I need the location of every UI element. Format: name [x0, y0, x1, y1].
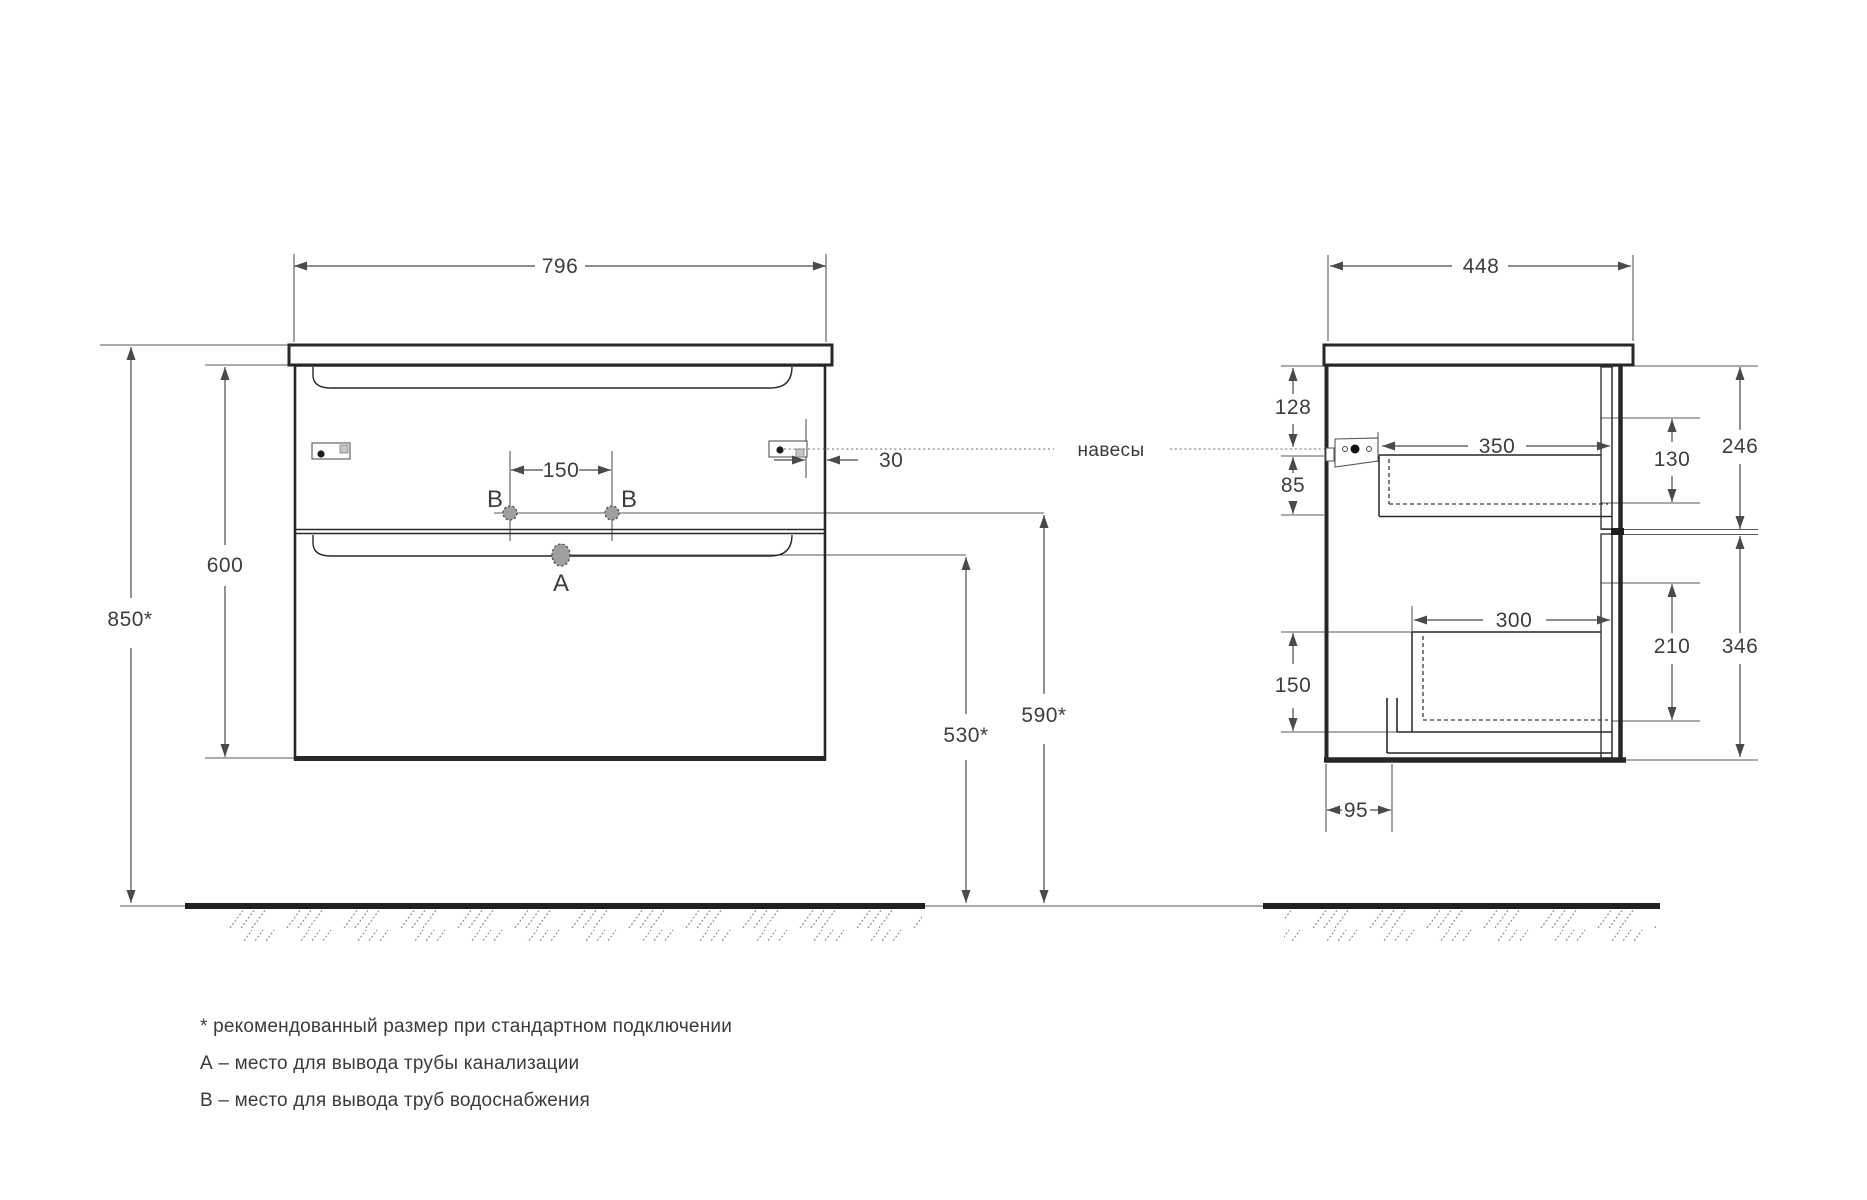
dim-drain-height: 530* — [943, 724, 988, 747]
left-mounting-bracket-icon — [312, 443, 350, 459]
dim-upper-drawer-side-height: 130 — [1654, 448, 1691, 471]
label-point-b-right: B — [621, 486, 637, 513]
label-point-a: A — [553, 570, 569, 597]
lower-drawer-box — [1412, 632, 1608, 732]
front-extension-lines — [100, 254, 1044, 758]
dim-mounting-height: 850* — [107, 608, 152, 631]
legend-a-note: А – место для вывода трубы канализации — [200, 1053, 579, 1074]
side-hanger-bracket-icon — [1326, 438, 1378, 467]
vanity-installation-drawing: 796 850* 600 150 30 590* 530* B B A наве… — [0, 0, 1867, 1200]
dim-lower-drawer-front-height: 346 — [1722, 635, 1759, 658]
legend-asterisk-note: * рекомендованный размер при стандартном… — [200, 1016, 732, 1037]
side-view: 448 128 85 350 130 246 300 210 346 150 9… — [1275, 255, 1759, 832]
water-supply-point-b-right — [605, 506, 619, 520]
hangers-callout: навесы — [784, 440, 1349, 461]
label-point-b-left: B — [487, 486, 503, 513]
dim-supply-height: 590* — [1021, 704, 1066, 727]
dim-front-width: 796 — [542, 255, 579, 278]
side-countertop — [1324, 345, 1633, 365]
upper-drawer-handle-groove — [313, 367, 792, 388]
side-dimension-lines — [1293, 266, 1740, 810]
dim-bracket-bottom-gap: 85 — [1281, 474, 1305, 497]
dim-upper-drawer-front-height: 246 — [1722, 435, 1759, 458]
floor-hatching-left — [222, 910, 922, 942]
front-view: 796 850* 600 150 30 590* 530* B B A — [100, 254, 1067, 903]
side-extension-lines — [1281, 255, 1758, 832]
dim-lower-drawer-side-height: 210 — [1654, 635, 1691, 658]
front-dimension-lines — [131, 266, 1044, 903]
legend: * рекомендованный размер при стандартном… — [200, 1016, 732, 1111]
water-supply-point-b-left — [503, 506, 517, 520]
drain-point-a — [552, 544, 570, 566]
drawer-front-gap — [1611, 528, 1624, 535]
dim-upper-drawer-depth: 350 — [1479, 435, 1516, 458]
upper-drawer-box — [1379, 455, 1612, 517]
dim-lower-drawer-depth: 300 — [1496, 609, 1533, 632]
dim-supply-spacing: 150 — [543, 459, 580, 482]
dim-cabinet-height: 600 — [207, 554, 244, 577]
hangers-label: навесы — [1077, 440, 1144, 461]
front-countertop — [289, 345, 832, 365]
dim-pipe-offset: 95 — [1344, 799, 1368, 822]
right-mounting-bracket-icon — [769, 441, 807, 457]
side-cabinet-body — [1324, 365, 1626, 761]
floor-hatching-right — [1284, 910, 1656, 942]
dim-depth: 448 — [1463, 255, 1500, 278]
dim-bottom-drawer-offset: 150 — [1275, 674, 1312, 697]
floor — [120, 906, 1660, 942]
dim-bracket-top-offset: 128 — [1275, 396, 1312, 419]
legend-b-note: В – место для вывода труб водоснабжения — [200, 1090, 590, 1111]
dim-bracket-offset: 30 — [879, 449, 903, 472]
drain-pipe-icon — [1387, 698, 1612, 753]
